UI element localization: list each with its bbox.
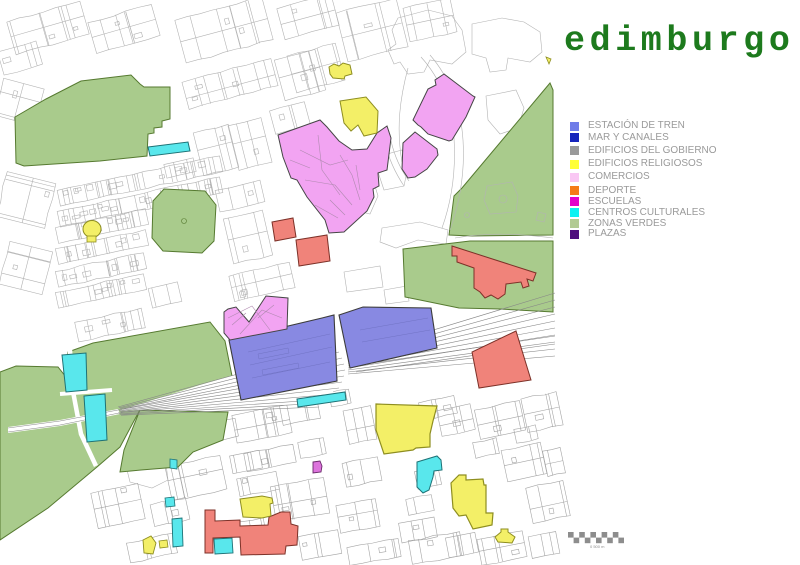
svg-text:0 500 m: 0 500 m — [590, 544, 605, 549]
